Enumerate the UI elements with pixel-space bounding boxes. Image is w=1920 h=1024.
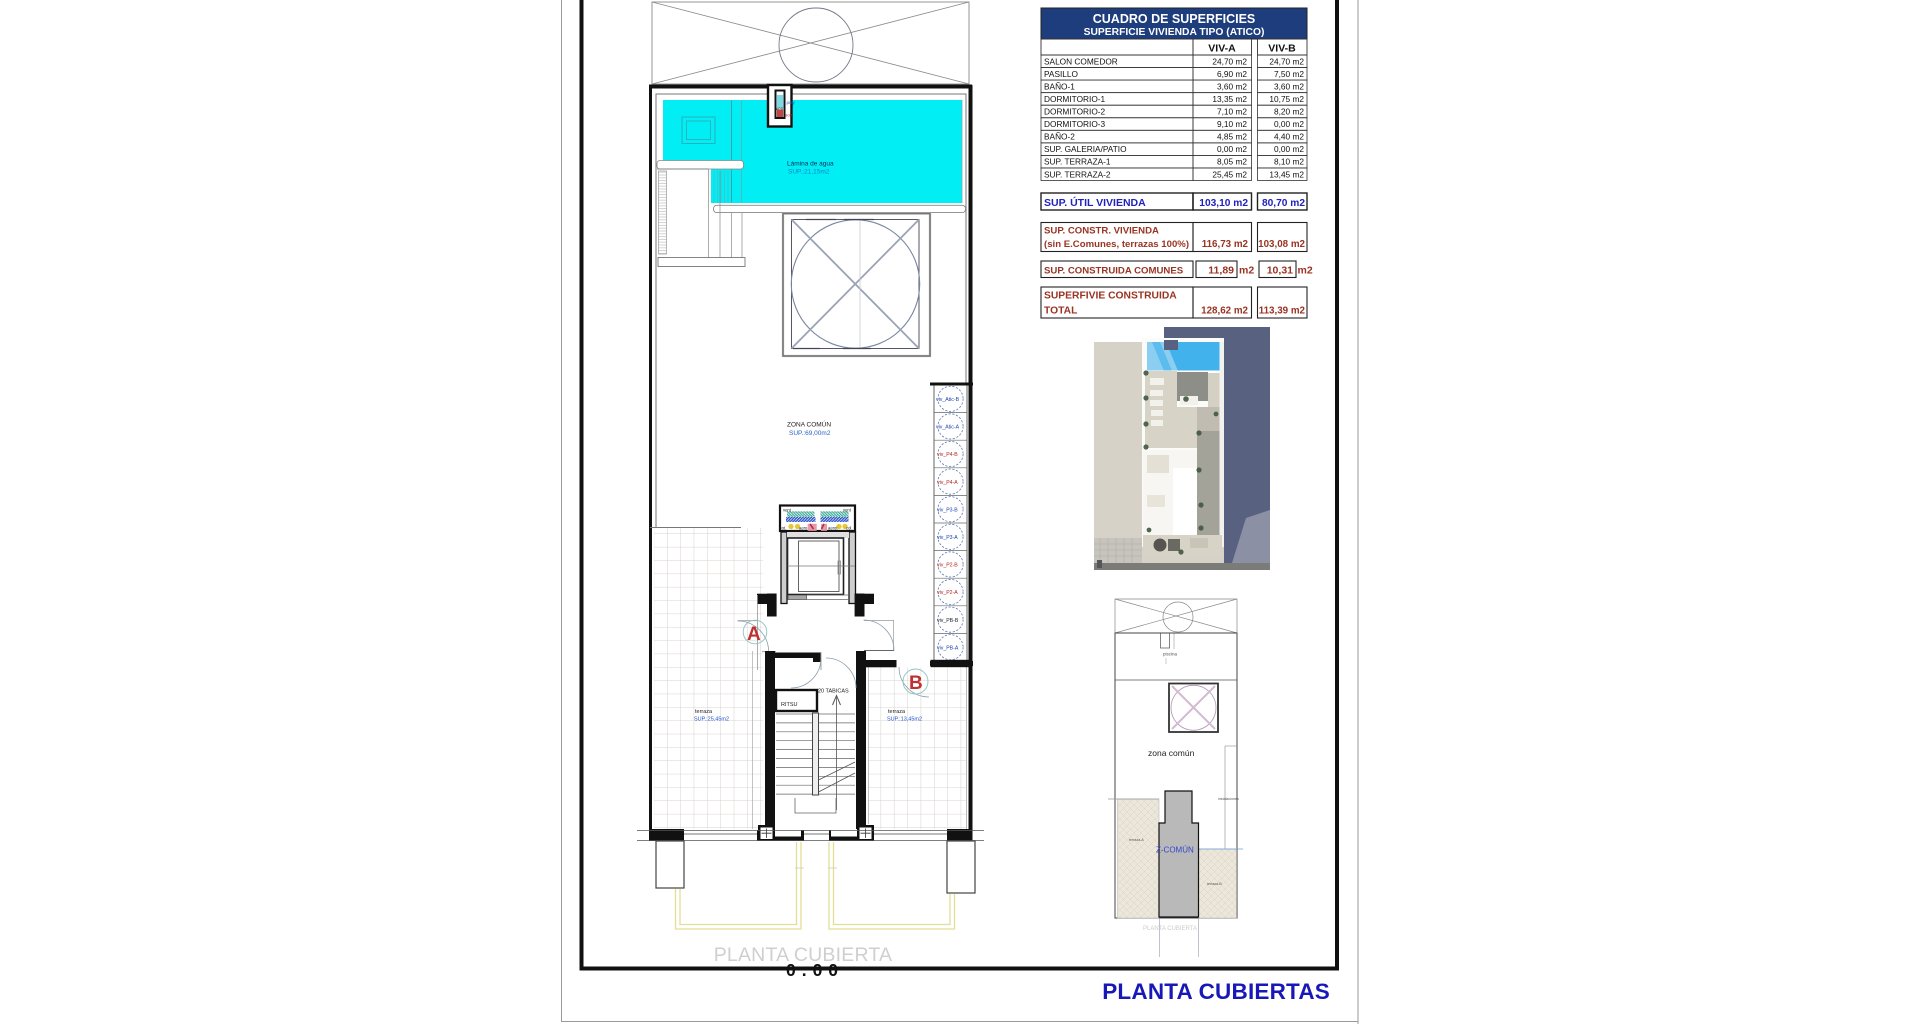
svg-text:SUP.:69,00m2: SUP.:69,00m2 (789, 430, 831, 437)
svg-text:instalaciones: instalaciones (1218, 797, 1239, 801)
svg-text:terraza: terraza (888, 709, 906, 715)
svg-text:viv_P3-B: viv_P3-B (937, 507, 958, 513)
svg-text:9,10 m2: 9,10 m2 (1217, 119, 1247, 129)
svg-text:0,00 m2: 0,00 m2 (1274, 144, 1304, 154)
svg-text:viv_Atic-A: viv_Atic-A (936, 425, 960, 431)
svg-text:SALON COMEDOR: SALON COMEDOR (1044, 56, 1118, 66)
svg-text:10,31: 10,31 (1267, 265, 1293, 277)
svg-text:viv_P3-A: viv_P3-A (937, 535, 958, 541)
svg-text:8,10 m2: 8,10 m2 (1274, 157, 1304, 167)
svg-text:aerot: aerot (828, 526, 838, 531)
svg-text:SUP. ÚTIL VIVIENDA: SUP. ÚTIL VIVIENDA (1044, 196, 1146, 209)
svg-text:8,05 m2: 8,05 m2 (1217, 157, 1247, 167)
svg-text:viv_Atic-B: viv_Atic-B (936, 397, 960, 403)
svg-text:A: A (747, 624, 761, 645)
svg-text:CUADRO DE SUPERFICIES: CUADRO DE SUPERFICIES (1093, 12, 1256, 26)
svg-text:m2: m2 (1239, 265, 1254, 277)
svg-text:0,00 m2: 0,00 m2 (1217, 144, 1247, 154)
svg-text:TOTAL: TOTAL (1044, 306, 1077, 317)
svg-text:Lámina de agua: Lámina de agua (787, 161, 834, 168)
svg-text:103,08 m2: 103,08 m2 (1258, 239, 1305, 250)
svg-text:terraza-B: terraza-B (1207, 882, 1222, 886)
svg-text:zona común: zona común (1148, 748, 1195, 758)
svg-text:viv_P2-B: viv_P2-B (937, 563, 958, 569)
svg-text:11,89: 11,89 (1208, 265, 1234, 277)
svg-text:SUP. TERRAZA-2: SUP. TERRAZA-2 (1044, 169, 1111, 179)
svg-text:BAÑO-2: BAÑO-2 (1044, 132, 1075, 142)
svg-text:7,50 m2: 7,50 m2 (1274, 69, 1304, 79)
svg-text:viv_P2-A: viv_P2-A (937, 590, 958, 596)
svg-text:viv_P4-B: viv_P4-B (937, 452, 958, 458)
svg-text:vent: vent (843, 508, 852, 513)
svg-text:128,62 m2: 128,62 m2 (1201, 306, 1248, 317)
svg-text:BAÑO-1: BAÑO-1 (1044, 81, 1075, 91)
svg-text:SUP.:21,15m2: SUP.:21,15m2 (788, 169, 830, 176)
svg-text:0,00 m2: 0,00 m2 (1274, 119, 1304, 129)
svg-text:SUPERFICIE VIVIENDA TIPO (ATI: SUPERFICIE VIVIENDA TIPO (ATICO) (1084, 27, 1265, 38)
svg-text:7,10 m2: 7,10 m2 (1217, 107, 1247, 117)
svg-text:(sin E.Comunes, terrazas 100%): (sin E.Comunes, terrazas 100%) (1044, 239, 1189, 250)
svg-text:piscina: piscina (1163, 652, 1178, 657)
svg-text:SUP. CONSTRUIDA COMUNES: SUP. CONSTRUIDA COMUNES (1044, 266, 1184, 277)
svg-text:113,39 m2: 113,39 m2 (1259, 306, 1306, 317)
svg-text:PLANTA CUBIERTA: PLANTA CUBIERTA (1143, 926, 1197, 932)
svg-text:SUPERFIVIE CONSTRUIDA: SUPERFIVIE CONSTRUIDA (1044, 291, 1177, 302)
svg-text:cot.: cot. (780, 526, 787, 531)
svg-text:Z-COMÚN: Z-COMÚN (1156, 846, 1194, 855)
svg-text:6,90 m2: 6,90 m2 (1217, 69, 1247, 79)
svg-text:8,20 m2: 8,20 m2 (1274, 107, 1304, 117)
svg-text:10,75 m2: 10,75 m2 (1269, 94, 1304, 104)
svg-text:SUP.:13,45m2: SUP.:13,45m2 (887, 717, 922, 723)
svg-text:B: B (909, 673, 923, 694)
svg-text:103,10 m2: 103,10 m2 (1199, 198, 1248, 209)
svg-text:col.: col. (846, 526, 853, 531)
svg-text:SUP. TERRAZA-1: SUP. TERRAZA-1 (1044, 157, 1111, 167)
svg-text:DORMITORIO-2: DORMITORIO-2 (1044, 107, 1106, 117)
svg-text:DORMITORIO-3: DORMITORIO-3 (1044, 119, 1106, 129)
svg-text:4,40 m2: 4,40 m2 (1274, 132, 1304, 142)
svg-text:son.: son. (785, 113, 794, 118)
svg-text:viv_PB-B: viv_PB-B (937, 618, 959, 624)
svg-text:13,45 m2: 13,45 m2 (1269, 169, 1304, 179)
svg-text:vent: vent (776, 106, 785, 111)
svg-text:vent: vent (783, 508, 792, 513)
svg-text:24,70 m2: 24,70 m2 (1269, 56, 1304, 66)
svg-text:puly: puly (787, 100, 796, 105)
svg-text:3,60 m2: 3,60 m2 (1217, 81, 1247, 91)
svg-text:terraza-A: terraza-A (1129, 838, 1144, 842)
svg-text:RITSU: RITSU (781, 702, 798, 708)
svg-text:aero: aero (799, 526, 808, 531)
svg-text:ZONA COMÚN: ZONA COMÚN (787, 420, 831, 429)
svg-text:3,60 m2: 3,60 m2 (1274, 81, 1304, 91)
svg-text:PASILLO: PASILLO (1044, 69, 1079, 79)
svg-text:viv_P4-A: viv_P4-A (937, 480, 958, 486)
svg-text:viv_PB-A: viv_PB-A (937, 645, 959, 651)
svg-text:SUP. GALERIA/PATIO: SUP. GALERIA/PATIO (1044, 144, 1127, 154)
svg-text:DORMITORIO-1: DORMITORIO-1 (1044, 94, 1106, 104)
svg-text:VIV-B: VIV-B (1268, 43, 1296, 55)
svg-text:24,70 m2: 24,70 m2 (1212, 56, 1247, 66)
svg-text:SUP. CONSTR. VIVIENDA: SUP. CONSTR. VIVIENDA (1044, 226, 1159, 237)
svg-text:80,70 m2: 80,70 m2 (1262, 198, 1305, 209)
svg-text:0.00: 0.00 (786, 960, 844, 980)
svg-text:116,73 m2: 116,73 m2 (1202, 239, 1249, 250)
svg-text:25,45 m2: 25,45 m2 (1212, 169, 1247, 179)
svg-text:m2: m2 (1298, 265, 1313, 277)
svg-text:4,85 m2: 4,85 m2 (1217, 132, 1247, 142)
svg-text:SUP.:25,45m2: SUP.:25,45m2 (694, 717, 729, 723)
svg-text:VIV-A: VIV-A (1208, 43, 1236, 55)
svg-text:20 TABICAS: 20 TABICAS (818, 689, 849, 695)
svg-text:13,35 m2: 13,35 m2 (1212, 94, 1247, 104)
svg-text:terraza: terraza (695, 709, 713, 715)
svg-text:PLANTA CUBIERTAS: PLANTA CUBIERTAS (1102, 979, 1330, 1004)
